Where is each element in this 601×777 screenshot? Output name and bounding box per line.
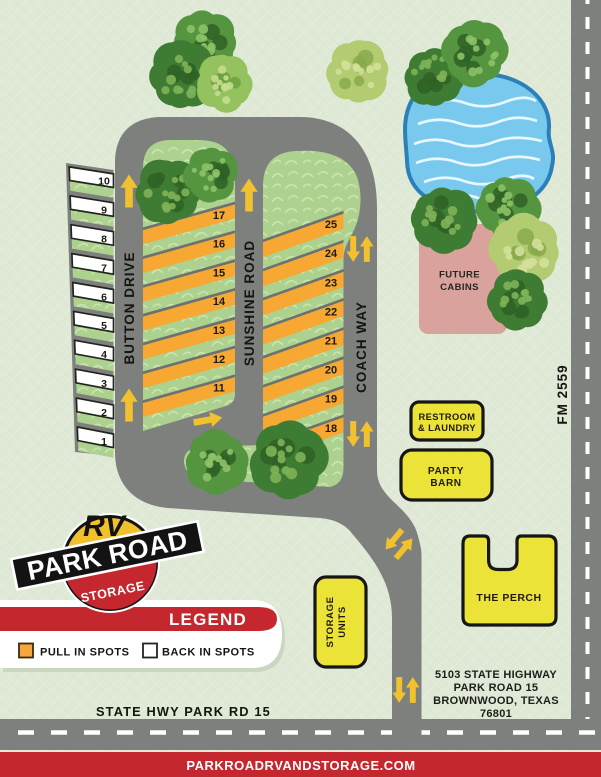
svg-text:22: 22 [325,306,337,318]
svg-text:PARK ROAD 15: PARK ROAD 15 [454,682,539,694]
svg-text:BARN: BARN [430,478,461,489]
svg-text:19: 19 [325,394,337,406]
svg-text:14: 14 [213,296,226,308]
svg-text:UNITS: UNITS [337,606,348,638]
svg-text:11: 11 [213,383,225,395]
svg-text:PULL IN SPOTS: PULL IN SPOTS [40,647,129,659]
svg-text:PARKROADRVANDSTORAGE.COM: PARKROADRVANDSTORAGE.COM [186,758,415,773]
svg-text:76801: 76801 [480,708,512,720]
svg-text:23: 23 [325,277,337,289]
svg-text:21: 21 [325,336,337,348]
svg-text:STATE HWY PARK RD 15: STATE HWY PARK RD 15 [96,704,271,719]
svg-text:BUTTON DRIVE: BUTTON DRIVE [122,251,137,364]
svg-text:4: 4 [101,349,107,361]
svg-text:BACK IN SPOTS: BACK IN SPOTS [162,647,255,659]
svg-text:5103 STATE HIGHWAY: 5103 STATE HIGHWAY [435,669,557,681]
svg-text:24: 24 [325,248,338,260]
svg-text:& LAUNDRY: & LAUNDRY [418,423,476,433]
svg-text:25: 25 [325,219,337,231]
svg-text:3: 3 [101,378,107,390]
svg-text:16: 16 [213,239,225,251]
svg-text:PARTY: PARTY [428,466,464,477]
svg-text:LEGEND: LEGEND [169,610,247,629]
svg-text:13: 13 [213,325,225,337]
svg-text:9: 9 [101,205,107,217]
svg-text:7: 7 [101,262,107,274]
svg-text:12: 12 [213,354,225,366]
svg-text:5: 5 [101,320,107,332]
svg-text:COACH WAY: COACH WAY [354,301,369,393]
svg-text:6: 6 [101,291,107,303]
svg-text:2: 2 [101,407,107,419]
svg-text:THE PERCH: THE PERCH [476,592,541,604]
svg-text:SUNSHINE ROAD: SUNSHINE ROAD [242,240,257,366]
svg-text:FM 2559: FM 2559 [555,364,570,424]
svg-text:20: 20 [325,365,337,377]
svg-text:BROWNWOOD, TEXAS: BROWNWOOD, TEXAS [433,695,559,707]
svg-text:8: 8 [101,234,107,246]
svg-text:STORAGE: STORAGE [325,596,336,647]
svg-text:15: 15 [213,267,225,279]
svg-text:18: 18 [325,423,337,435]
svg-text:17: 17 [213,210,225,222]
svg-text:FUTURE: FUTURE [439,270,480,281]
svg-text:10: 10 [98,176,110,188]
svg-text:CABINS: CABINS [440,282,479,293]
svg-text:1: 1 [101,436,107,448]
svg-text:RESTROOM: RESTROOM [419,412,476,422]
